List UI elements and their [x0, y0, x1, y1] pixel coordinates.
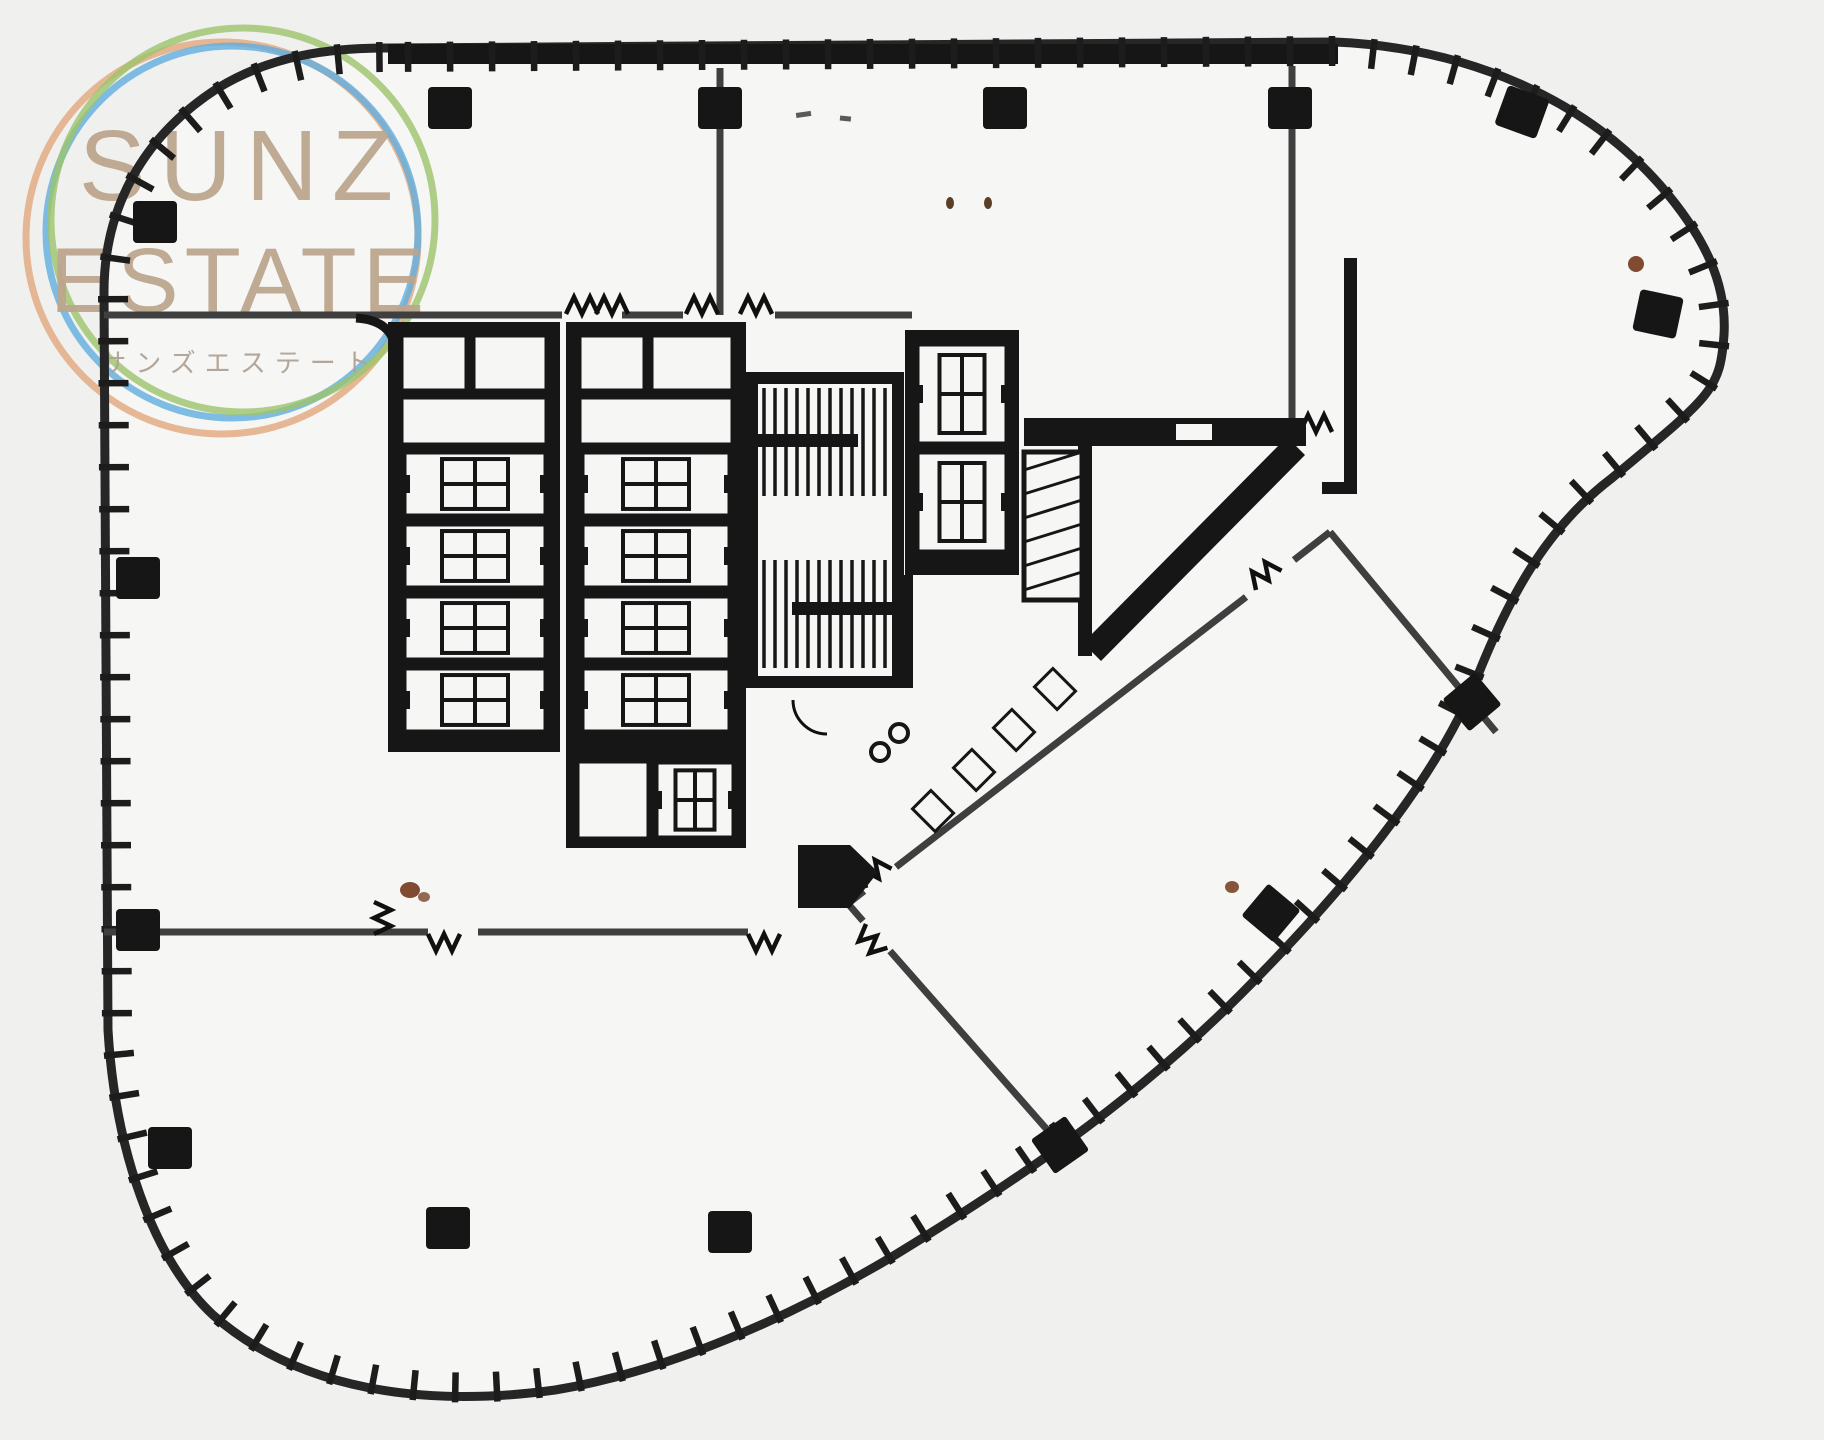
ink-speck [1225, 881, 1239, 893]
floor-plan-image: SUNZ ESTATE サンズエステート [0, 0, 1824, 1440]
door-jamb [913, 493, 923, 511]
column [1632, 289, 1684, 339]
door-jamb [1001, 493, 1011, 511]
elevator-car [578, 596, 734, 660]
core-room [402, 398, 546, 444]
stair-divider [758, 434, 858, 447]
logo-title-line1: SUNZ [79, 110, 407, 222]
ink-speck [984, 197, 992, 209]
door-jamb [578, 691, 588, 709]
door-jamb [400, 547, 410, 565]
core-room [402, 336, 466, 390]
mullion-tick [496, 1372, 498, 1402]
core-room [652, 336, 732, 390]
elevator-car [578, 668, 734, 732]
mullion-tick [1371, 39, 1374, 69]
elevator-car [400, 596, 550, 660]
mullion-tick [100, 257, 130, 261]
elevator-car [400, 524, 550, 588]
column [148, 1127, 192, 1169]
entry-vestibule-wall [1344, 258, 1357, 494]
stair-divider [792, 602, 892, 615]
mullion-tick [455, 1372, 456, 1402]
ink-speck [400, 882, 420, 898]
door-jamb [724, 475, 734, 493]
ink-speck [946, 197, 954, 209]
door-jamb [540, 691, 550, 709]
logo-subtitle: サンズエステート [100, 348, 379, 378]
triangle-room-door-opening [1176, 424, 1212, 440]
core-room [580, 398, 732, 444]
top-facade-wall [388, 44, 1338, 64]
elevator-car [400, 452, 550, 516]
door-jamb [578, 475, 588, 493]
door-jamb [724, 691, 734, 709]
door-jamb [913, 385, 923, 403]
column [426, 1207, 470, 1249]
elevator-car [913, 452, 1011, 552]
core-room [580, 336, 644, 390]
core-room [474, 336, 546, 390]
triangle-room-top-wall [1024, 418, 1306, 446]
mullion-tick [104, 1053, 134, 1056]
door-jamb [652, 791, 662, 809]
elevator-car [578, 452, 734, 516]
door-jamb [578, 619, 588, 637]
column [1268, 87, 1312, 129]
column [428, 87, 472, 129]
elevator-car [400, 668, 550, 732]
door-jamb [1001, 385, 1011, 403]
door-jamb [578, 547, 588, 565]
door-jamb [540, 619, 550, 637]
door-jamb [724, 547, 734, 565]
door-jamb [400, 691, 410, 709]
mullion-tick [337, 44, 340, 74]
column [698, 87, 742, 129]
mullion-tick [413, 1370, 416, 1400]
door-jamb [400, 475, 410, 493]
door-jamb [400, 619, 410, 637]
column [133, 201, 177, 243]
column [116, 909, 160, 951]
column [116, 557, 160, 599]
entry-vestibule-wall-foot [1322, 482, 1348, 494]
wc-sink-icon [890, 724, 908, 742]
core-room [578, 762, 648, 838]
mullion-tick [1699, 343, 1729, 346]
elevator-car [578, 524, 734, 588]
wc-sink-icon [871, 743, 889, 761]
door-jamb [728, 791, 738, 809]
column [983, 87, 1027, 129]
door-jamb [724, 619, 734, 637]
door-jamb [540, 547, 550, 565]
mullion-tick [536, 1368, 539, 1398]
door-jamb [540, 475, 550, 493]
ink-speck [418, 892, 430, 902]
elevator-car [913, 344, 1011, 444]
mullion-tick [1699, 303, 1729, 307]
elevator-car [652, 762, 738, 838]
column [708, 1211, 752, 1253]
stair-landing [758, 496, 892, 560]
ink-speck [1628, 256, 1644, 272]
